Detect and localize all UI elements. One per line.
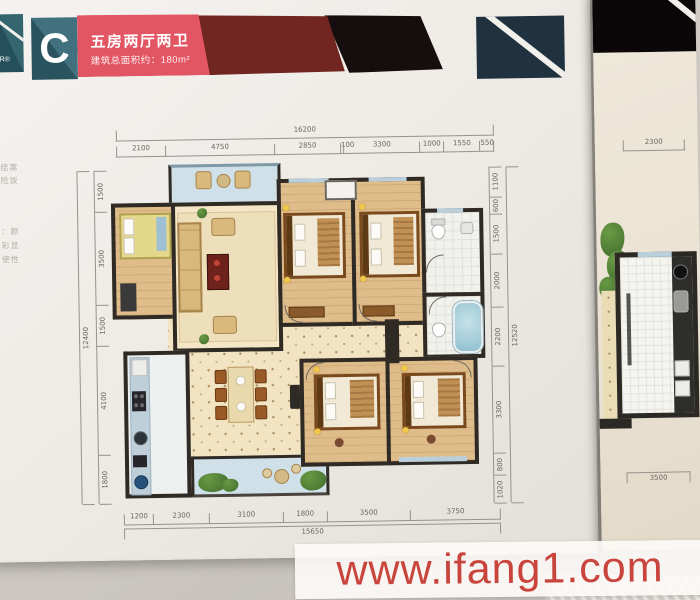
appliance [675,360,690,376]
round-table [216,174,230,188]
page-subtitle: 建筑总面积约：180m² [91,51,191,67]
floor-plan [110,160,491,501]
coffee-table [207,254,230,290]
door-arc [359,304,377,322]
dim-right-segments: 1100 600 1500 2000 2200 3300 800 1020 [488,167,506,503]
dim-segment: 3500 [326,510,410,522]
dim-segment: 15650 [124,523,501,540]
round-table [274,469,289,484]
bedside-lamp [314,428,320,434]
pillow [370,222,381,239]
header-corner-block [476,16,565,79]
dining-table [228,366,255,422]
desk [120,283,136,311]
pillow [325,403,336,420]
page2-header-block [592,0,696,53]
watermark-band: www.ifang1.com [295,540,700,599]
plants [222,479,238,492]
flower-decor [214,260,220,266]
stool [262,468,272,478]
room-bedroom-d [385,356,479,465]
page2-kitchen [615,251,700,418]
dim-segment: 1550 [443,141,479,153]
door-arc [285,305,303,323]
window [289,178,329,183]
toilet [431,224,445,239]
ac-platform [325,180,357,201]
appliance [675,380,690,396]
dim-segment: 3300 [493,365,506,453]
dim-segment: 3300 [343,142,419,154]
burner [140,394,144,398]
page2-dim-bottom: 3500 [626,471,690,483]
dim-segment: 12520 [506,166,523,503]
room-bedroom-c [299,357,391,466]
dim-segment: 1000 [419,141,443,152]
header-band-maroon [192,13,345,75]
headboard [317,377,324,427]
dim-segment: 2000 [491,253,504,307]
edge-text-fragment: 使性 [2,254,20,265]
door-arc [426,254,444,272]
washing-machine [134,475,148,489]
stove [132,391,146,411]
armchair [211,218,235,236]
pillow [295,250,306,267]
dim-segment: 2850 [274,143,340,155]
bedside-lamp [283,205,289,211]
dim-left-overall: 12400 [76,171,94,504]
pillow [294,224,305,241]
armchair [234,170,250,188]
edge-text-fragment: 险饭 [0,175,18,186]
pillow [413,381,424,398]
headboard [286,216,293,276]
blanket [350,380,375,418]
bay-window [399,456,467,462]
counter-edge [626,293,631,365]
plants [300,470,326,490]
plate [236,376,246,386]
burner [140,403,144,407]
photo-of-brochure: R® C 五房两厅两卫 建筑总面积约：180m² 结蒿 险饭 ：颜 彩显 使性 … [0,0,700,600]
sink [460,222,473,234]
sofa [177,222,202,312]
pillow [325,382,336,399]
logo-text-fragment: R® [0,56,10,63]
dim-segment: 1500 [97,305,110,346]
stool [335,438,344,447]
dim-segment: 3750 [410,509,501,521]
logo-diagonal-stripe [0,16,24,47]
bed-throw [156,217,167,251]
blanket [317,218,340,266]
window [638,252,672,258]
dim-segment: 2100 [116,146,165,158]
unit-letter: C [39,27,70,69]
bed [119,213,172,260]
room-bathroom-2 [422,292,485,359]
dim-segment: 600 [490,196,502,213]
headboard [362,215,369,275]
window [369,177,407,182]
dim-segment: 800 [494,453,506,475]
room-bedroom-b [351,177,427,326]
brochure-page-left: R® C 五房两厅两卫 建筑总面积约：180m² 结蒿 险饭 ：颜 彩显 使性 … [0,0,598,563]
room-balcony-top [168,163,281,207]
cabinet [133,455,147,467]
corner-block-stripe [476,16,565,79]
dim-segment: 1500 [490,213,503,253]
dim-segment: 3500 [95,211,108,305]
plate [236,402,246,412]
bedside-lamp [402,427,408,433]
kitchen-sink [673,290,688,312]
toilet [432,322,446,337]
blanket [438,378,461,416]
dim-segment: 3500 [626,471,690,483]
door-arc [453,360,471,378]
bathtub [453,301,484,353]
edge-text-fragment: ：颜 [1,226,19,237]
door-arc [428,296,446,314]
dim-segment: 1100 [489,167,501,197]
pillow [413,402,424,419]
dining-chair [215,388,227,402]
stool [427,435,436,444]
room-bedroom-left [111,203,177,320]
dim-segment: 4100 [97,346,111,456]
watermark-url: www.ifang1.com [336,543,664,595]
window [437,208,463,212]
dim-segment: 1500 [94,171,107,212]
pillow [371,248,382,265]
dim-segment: 550 [479,141,494,152]
room-bedroom-a [277,178,357,327]
dim-segment: 3100 [209,512,283,524]
potted-plant [199,334,209,344]
room-kitchen [123,350,191,498]
dining-chair [255,405,267,419]
flower-decor [214,275,220,281]
fridge [131,359,147,376]
room-bathroom-1 [421,208,484,297]
room-living [171,201,283,353]
brand-logo-partial: R® [0,14,24,72]
page2-dim-top: 2300 [623,139,685,151]
dim-bottom-overall: 15650 [124,523,501,540]
dim-segment: 2300 [623,139,685,151]
dim-segment: 1800 [283,511,327,523]
dining-chair [215,370,227,384]
burner [134,394,138,398]
page2-header-stripe [649,0,697,41]
dim-segment: 4750 [165,144,274,157]
bedside-lamp [359,204,365,210]
burner [134,403,138,407]
stool [291,464,301,474]
wall-stub [385,319,400,363]
kitchen-sink [134,431,148,445]
dim-top-segments: 2100 4750 2850 100 3300 1000 1550 550 [116,141,494,158]
bed [283,212,346,279]
edge-text-fragment: 彩显 [2,240,20,251]
dim-segment: 2200 [492,307,505,366]
dining-chair [255,387,267,401]
dim-segment: 1200 [124,514,154,525]
headboard [405,376,412,426]
bedside-lamp [284,277,290,283]
pillow [123,218,134,235]
dim-right-overall: 12520 [505,166,523,502]
dim-segment: 1800 [99,455,112,505]
brochure-page-right: 2300 3500 [592,0,700,551]
door-arc [305,362,323,380]
dining-chair [255,369,267,383]
bed [402,372,467,429]
dining-chair [215,406,227,420]
blanket [393,217,414,265]
armchair [195,171,211,189]
bed [314,373,381,430]
bed [359,211,420,278]
dim-segment: 2300 [153,513,209,525]
edge-text-fragment: 结蒿 [0,162,18,173]
bedside-lamp [402,365,408,371]
dim-segment: 12400 [77,171,94,505]
pillow [123,237,134,254]
dim-left-segments: 1500 3500 1500 4100 1800 [93,171,111,504]
wall-stub [600,418,632,429]
bedside-lamp [360,276,366,282]
dim-segment: 1020 [494,475,506,504]
unit-type-badge: C [31,17,78,80]
page-title: 五房两厅两卫 [90,29,189,52]
armchair [213,316,237,334]
